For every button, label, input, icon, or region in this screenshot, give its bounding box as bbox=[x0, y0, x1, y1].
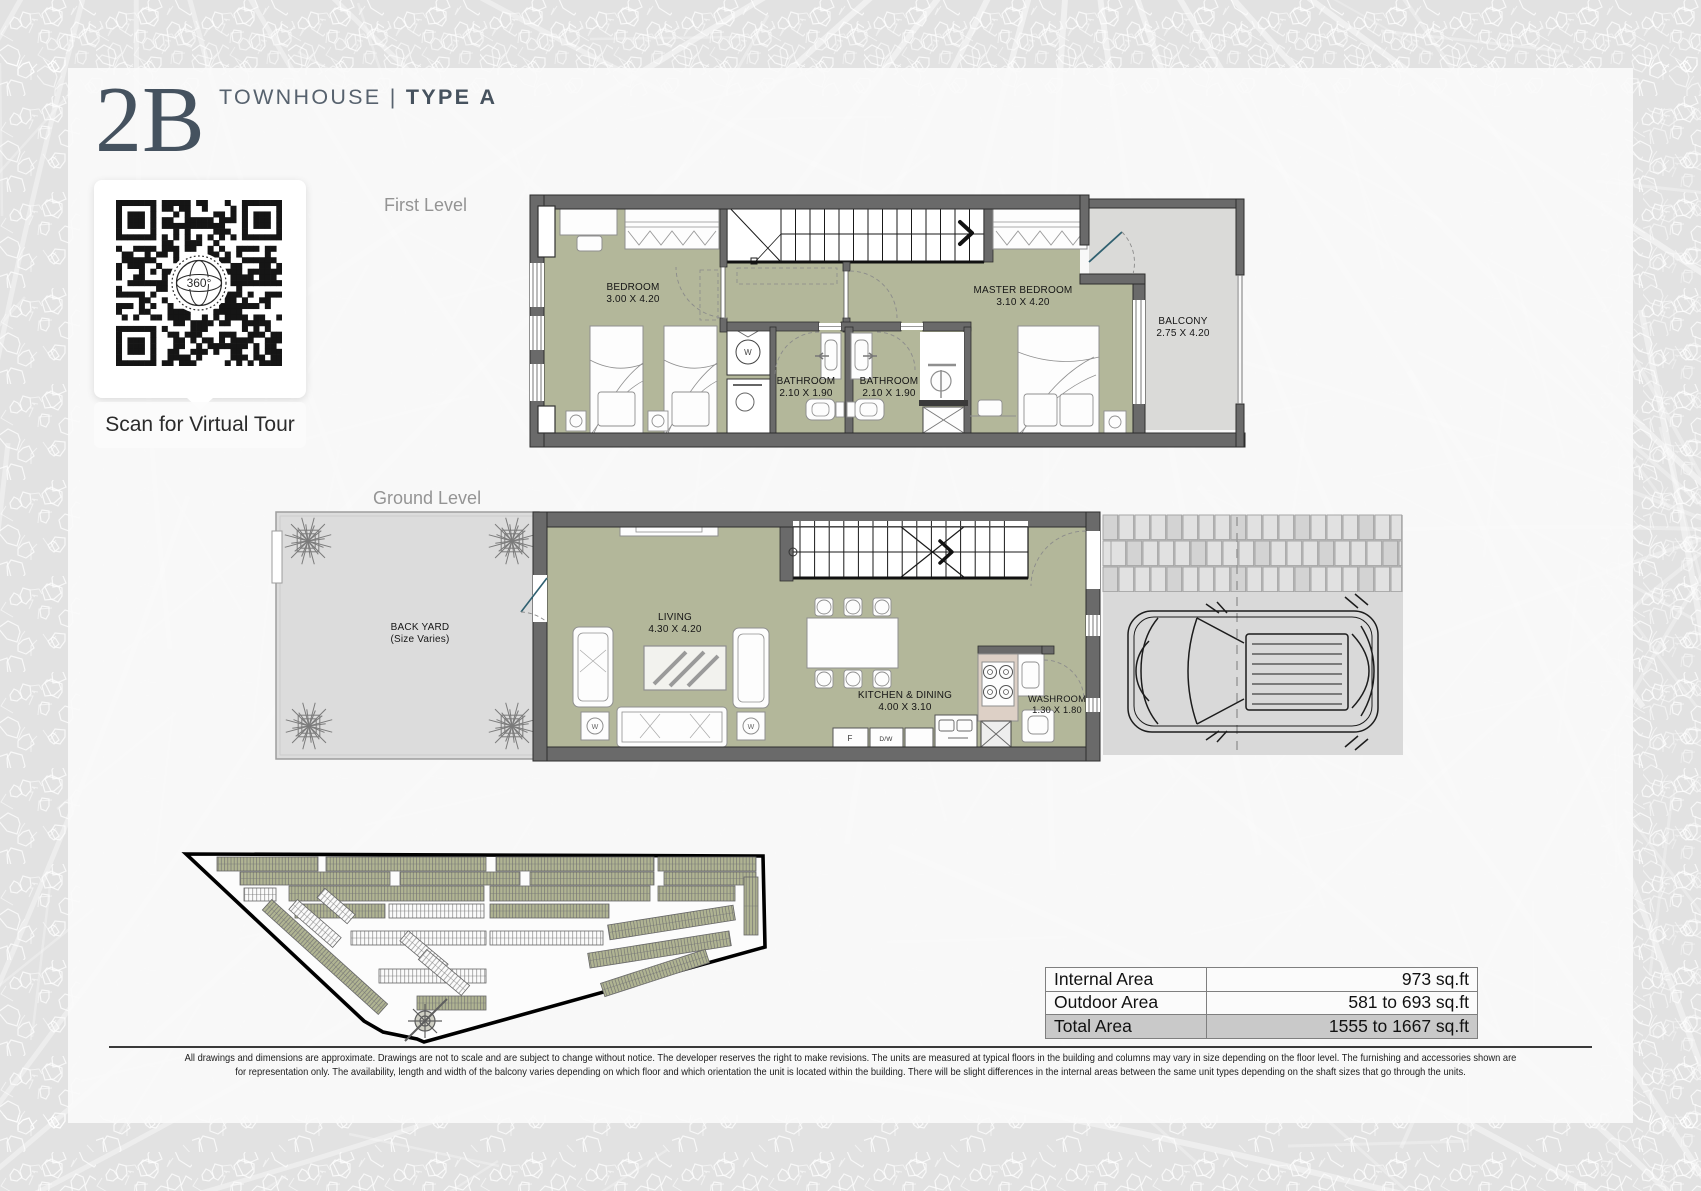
svg-text:360°: 360° bbox=[187, 276, 212, 290]
svg-text:2.10 X 1.90: 2.10 X 1.90 bbox=[779, 388, 833, 399]
svg-text:BACK YARD: BACK YARD bbox=[391, 622, 450, 633]
svg-text:LIVING: LIVING bbox=[658, 612, 692, 623]
svg-text:W: W bbox=[744, 348, 752, 357]
svg-text:2.10 X 1.90: 2.10 X 1.90 bbox=[862, 388, 916, 399]
svg-text:MASTER BEDROOM: MASTER BEDROOM bbox=[974, 285, 1073, 296]
svg-text:F: F bbox=[847, 734, 852, 743]
svg-text:W: W bbox=[592, 724, 599, 731]
svg-text:1.30 X 1.80: 1.30 X 1.80 bbox=[1032, 705, 1082, 715]
svg-text:BALCONY: BALCONY bbox=[1158, 316, 1207, 327]
svg-text:WASHROOM: WASHROOM bbox=[1028, 694, 1086, 704]
svg-text:3.10 X 4.20: 3.10 X 4.20 bbox=[996, 297, 1050, 308]
svg-text:D/W: D/W bbox=[879, 736, 893, 743]
svg-text:KITCHEN & DINING: KITCHEN & DINING bbox=[858, 690, 952, 701]
svg-text:3.00 X 4.20: 3.00 X 4.20 bbox=[606, 294, 660, 305]
svg-text:W: W bbox=[748, 724, 755, 731]
svg-text:2.75 X 4.20: 2.75 X 4.20 bbox=[1156, 328, 1210, 339]
svg-text:4.30 X 4.20: 4.30 X 4.20 bbox=[648, 624, 702, 635]
svg-text:(Size Varies): (Size Varies) bbox=[390, 634, 449, 645]
svg-text:BATHROOM: BATHROOM bbox=[777, 376, 836, 387]
svg-text:4.00 X 3.10: 4.00 X 3.10 bbox=[878, 702, 932, 713]
svg-text:BEDROOM: BEDROOM bbox=[606, 282, 659, 293]
svg-text:BATHROOM: BATHROOM bbox=[860, 376, 919, 387]
